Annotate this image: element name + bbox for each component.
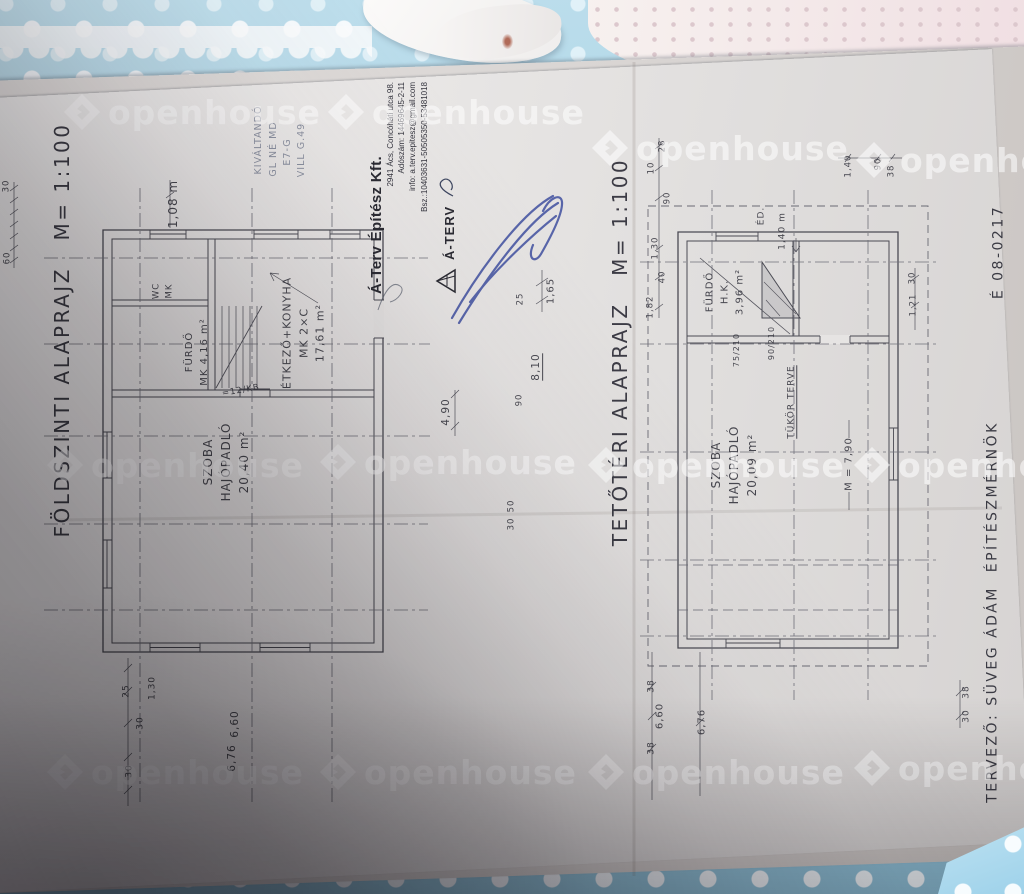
dim: 1,30	[146, 676, 160, 700]
dim: 1,65	[544, 278, 559, 304]
height-note: M = 7,90	[842, 437, 857, 491]
dim: 50	[506, 500, 519, 513]
pencil-note: GL NÉ MD	[267, 121, 281, 176]
room-label-szoba-attic: SZOBA HAJÓPADLÓ 20,09 m²	[707, 426, 761, 505]
title-ground-floor: FÖLDSZINTI ALAPRAJZ M= 1:100	[47, 123, 77, 538]
dim: 1,21	[908, 294, 921, 317]
dim: 30	[907, 272, 920, 285]
stamp-logo-icon	[435, 268, 457, 294]
dim: 25	[120, 684, 134, 697]
room-label-wc: WC MK	[150, 283, 176, 299]
annotations-layer: FÖLDSZINTI ALAPRAJZ M= 1:100TETŐTÉRI ALA…	[0, 0, 1024, 894]
dim: 38	[886, 165, 899, 178]
stamp-email: info: a.terv.epitesz@gmail.com	[407, 82, 418, 294]
signature-scribble-icon	[435, 172, 457, 198]
architect-stamp: Á-Terv Építész Kft. 2941 Ács, Concóháti …	[368, 82, 474, 294]
dim: 40	[657, 271, 670, 284]
dim: 30	[123, 764, 137, 777]
pencil-note: KIVÁLTANDÓ	[252, 106, 266, 175]
dim: 30	[960, 709, 974, 722]
dim: 38	[645, 741, 659, 754]
dim: 6,60	[653, 703, 668, 729]
dim: 6,60	[228, 710, 244, 737]
dim: 6,76	[695, 709, 710, 735]
dim: 90	[514, 394, 527, 407]
dim: 30	[134, 716, 148, 729]
room-label-etkezo: ÉTKEZŐ+KONYHA MK 2×C 17,61 m²	[279, 277, 329, 389]
designer-credit: TERVEZŐ: SÜVEG ÁDÁM ÉPÍTÉSZMÉRNÖK	[983, 421, 1004, 803]
dim: 1,82	[645, 296, 658, 319]
dim: 28	[657, 140, 670, 153]
dim: 90	[662, 192, 675, 205]
door-size: 75/210	[731, 333, 743, 367]
mirror-plan-note: TÜKÖR TERVE	[785, 365, 799, 438]
dim: 1,08 m	[164, 180, 182, 228]
dim: 25	[515, 293, 528, 306]
dim: 60	[2, 252, 15, 265]
title-attic: TETŐTÉRI ALAPRAJZ M= 1:100	[605, 158, 635, 546]
stamp-address: 2941 Ács, Concóháti utca 98.	[385, 82, 396, 294]
stamp-logo-text: Á-TERV	[442, 206, 457, 260]
north-note: ÉD.	[755, 207, 769, 225]
door-size: 90/210	[766, 326, 778, 360]
dim: 1,30	[650, 237, 663, 260]
dim: 90	[873, 158, 886, 171]
stamp-company: Á-Terv Építész Kft.	[368, 82, 385, 294]
room-label-furdo-attic: FÜRDŐ H.K. 3,96 m²	[703, 269, 748, 315]
dim: 30	[1, 180, 14, 193]
room-label-szoba-gf: SZOBA HAJÓPADLÓ 20,40 m²	[199, 423, 253, 502]
pencil-note: E7-G	[281, 138, 295, 165]
photo-of-floorplan: FÖLDSZINTI ALAPRAJZ M= 1:100TETŐTÉRI ALA…	[0, 0, 1024, 894]
stair-note: =12/KB	[221, 381, 261, 400]
dim: 1,40 m	[776, 212, 790, 250]
dim: 8,10	[529, 353, 545, 380]
stamp-bank-number: Bsz.:10403631-50505350-53481018	[419, 82, 430, 294]
room-label-furdo-gf: FÜRDŐ MK 4,16 m²	[182, 318, 212, 386]
dim: 6,76	[225, 744, 241, 771]
dim: 1,40	[843, 155, 856, 178]
license-number: É 08-0217	[989, 205, 1010, 299]
dim: 4,90	[439, 398, 455, 425]
dim: 30	[506, 518, 519, 531]
stamp-tax-number: Adószám: 14469645-2-11	[396, 82, 407, 294]
pencil-note: VILL G.49	[295, 123, 309, 177]
dim: 38	[960, 685, 974, 698]
dim: 38	[645, 679, 659, 692]
dim: 10	[646, 162, 659, 175]
